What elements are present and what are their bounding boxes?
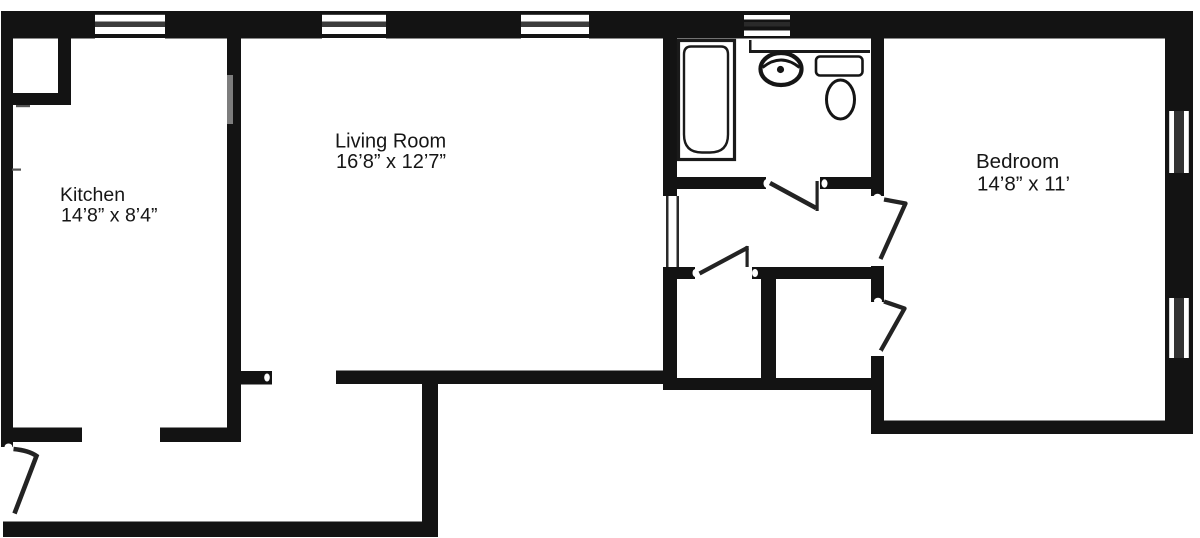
svg-text:14’8” x 11’: 14’8” x 11’ xyxy=(977,173,1070,196)
svg-text:16’8” x 12’7”: 16’8” x 12’7” xyxy=(336,151,446,173)
svg-text:14’8” x 8’4”: 14’8” x 8’4” xyxy=(61,205,157,227)
svg-text:Living Room: Living Room xyxy=(335,131,446,153)
svg-text:Bedroom: Bedroom xyxy=(976,150,1059,173)
svg-text:Kitchen: Kitchen xyxy=(60,184,125,206)
